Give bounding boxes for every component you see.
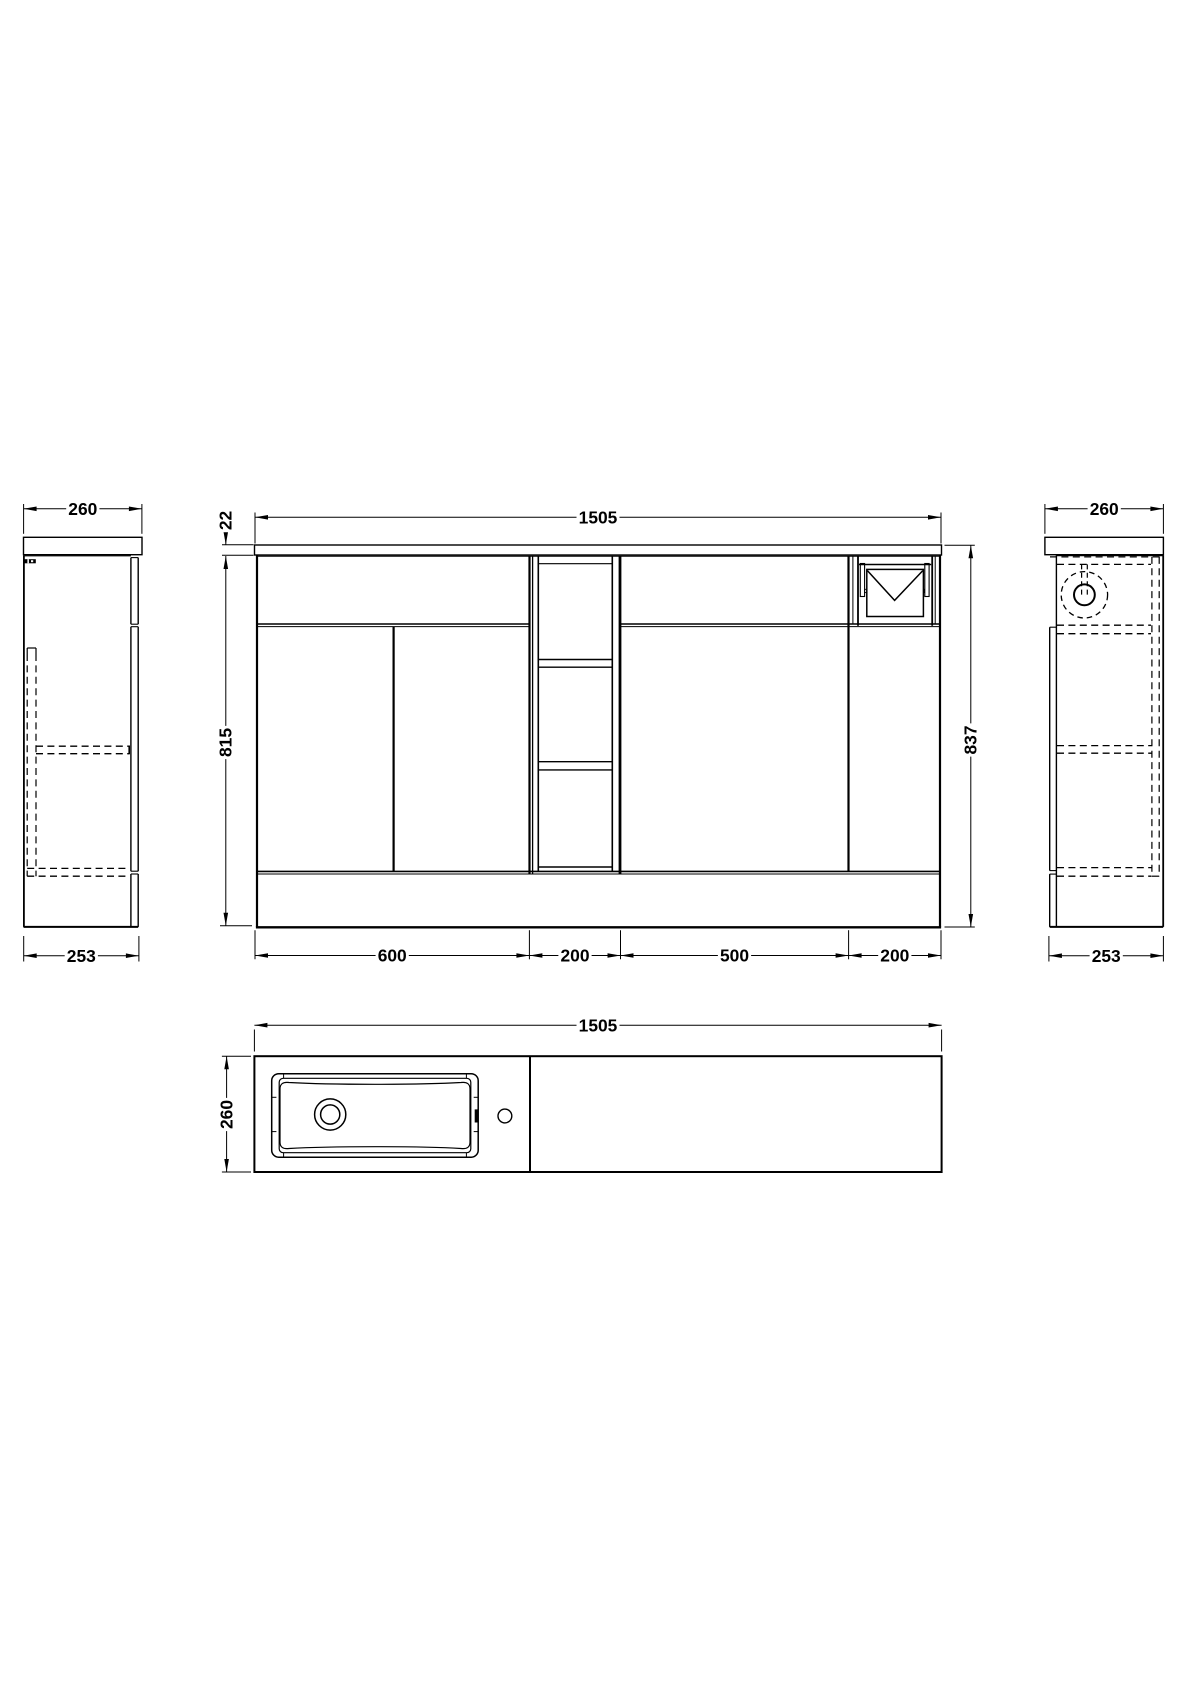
svg-text:260: 260 [1090, 499, 1119, 519]
svg-text:22: 22 [215, 511, 235, 530]
svg-text:600: 600 [378, 946, 407, 966]
svg-text:253: 253 [1092, 946, 1121, 966]
svg-text:260: 260 [216, 1100, 236, 1129]
svg-text:1505: 1505 [579, 1015, 618, 1035]
svg-text:837: 837 [961, 725, 981, 754]
svg-text:815: 815 [215, 728, 235, 757]
svg-text:200: 200 [880, 946, 909, 966]
svg-text:260: 260 [68, 499, 97, 519]
svg-text:500: 500 [720, 946, 749, 966]
svg-text:200: 200 [560, 946, 589, 966]
svg-text:253: 253 [67, 946, 96, 966]
svg-text:1505: 1505 [579, 507, 618, 527]
